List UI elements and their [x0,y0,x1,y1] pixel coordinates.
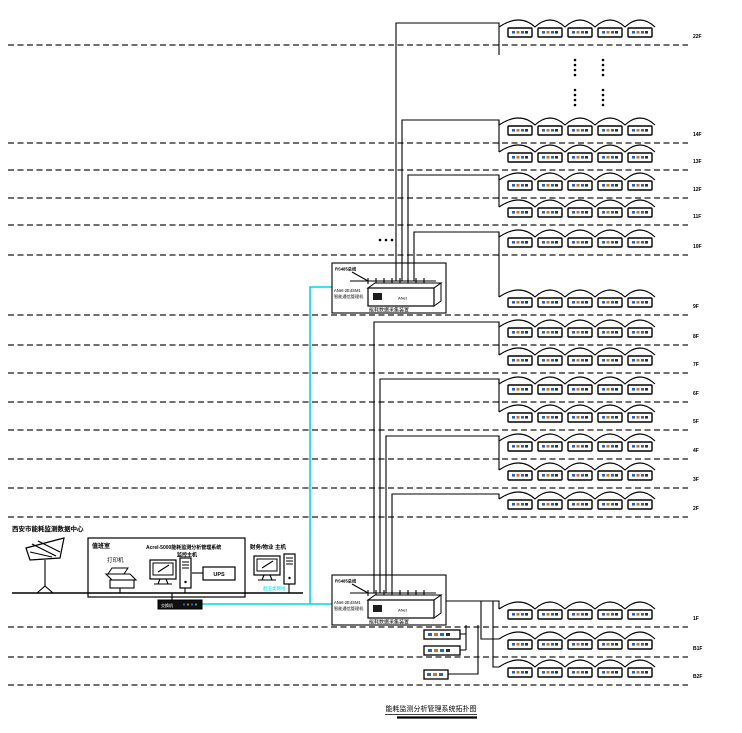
energy-meter-icon [508,181,532,190]
meter-daisy-chain [499,145,655,152]
energy-meter-icon [598,28,622,37]
floor-label: 1F [693,616,699,622]
floor-label: 13F [693,159,702,165]
energy-meter-icon [508,208,532,217]
floor-label: 8F [693,334,699,340]
monitoring-host-computer-icon [150,558,191,588]
omitted-riser-dots [379,239,394,242]
floor-row-10F: 10F [499,230,702,250]
floor-row-13F: 13F [499,145,702,165]
energy-meter-icon [598,328,622,337]
energy-meter-icon [538,208,562,217]
energy-meter-icon [508,385,532,394]
floor-feed-wire [380,379,499,593]
floor-feed-wire [481,601,499,639]
gateway-caption: 能耗数据采集装置 [369,307,409,314]
finance-host-computer-icon [254,554,295,584]
cable-label: 超五类网线 [263,585,286,592]
bus-leader-line [352,584,368,593]
floor-meter-rows: 22F14F13F12F11F10F9F8F7F6F5F4F3F2F1FB1FB… [499,20,702,680]
floor-row-8F: 8F [499,320,699,340]
gateway-model-line2: 智能通信管理机 [334,293,364,300]
satellite-dish-icon [26,538,64,593]
gateway-model-line1: ANet-2E4SM1 [334,600,361,605]
gateway-upper: RS485总线 ANet-2E4SM1 智能通信管理机 ANet 能耗数据采集装… [332,263,446,314]
energy-meter-icon [538,442,562,451]
energy-meter-icon [538,640,562,649]
host-label-line1: Acrel-5000能耗监测分析管理系统 [146,544,221,551]
energy-meter-icon [538,298,562,307]
floor-label: 7F [693,362,699,368]
energy-meter-icon [628,181,652,190]
energy-meter-icon [508,28,532,37]
floor-row-6F: 6F [499,377,699,397]
meter-daisy-chain [499,173,655,180]
device-brand-text: ANet [398,296,408,301]
energy-meter-icon [628,208,652,217]
meter-daisy-chain [499,377,655,384]
energy-meter-icon [628,153,652,162]
finance-host-label: 财务/物业 主机 [249,543,287,551]
ethernet-switch: 交换机 [158,600,202,609]
energy-meter-icon [424,646,460,655]
energy-meter-icon [628,328,652,337]
floor-label: 5F [693,419,699,425]
energy-meter-icon [508,413,532,422]
energy-meter-icon [598,385,622,394]
energy-meter-icon [538,385,562,394]
energy-meter-icon [628,238,652,247]
meter-daisy-chain [499,200,655,207]
energy-meter-icon [508,471,532,480]
energy-meter-icon [598,181,622,190]
floor-feed-wire [414,232,499,281]
floor-row-14F: 14F [499,118,702,138]
energy-meter-icon [508,328,532,337]
floor-feed-wire [396,23,499,281]
device-display [373,293,382,300]
meter-daisy-chain [499,348,655,355]
floor-feed-wire [402,120,499,281]
energy-meter-icon [628,28,652,37]
energy-meter-icon [538,153,562,162]
floor-feed-wire [374,322,499,593]
floor-row-3F: 3F [499,463,699,483]
gateway-model-line1: ANet-2E4SM1 [334,288,361,293]
energy-meter-icon [568,28,592,37]
meter-daisy-chain [499,320,655,327]
floor-feed-wire [446,601,499,609]
floor-label: 2F [693,506,699,512]
meter-daisy-chain [499,463,655,470]
energy-meter-icon [424,630,460,639]
energy-meter-icon [598,126,622,135]
energy-meter-icon [538,668,562,677]
energy-meter-icon [568,500,592,509]
gateway-caption: 能耗数据采集装置 [369,619,409,626]
meter-daisy-chain [499,405,655,412]
energy-meter-icon [538,413,562,422]
energy-meter-icon [598,668,622,677]
gateway-lower: RS485总线 ANet-2E4SM1 智能通信管理机 ANet 能耗数据采集装… [332,575,446,626]
energy-meter-icon [538,356,562,365]
meter-daisy-chain [499,20,655,27]
device-display [373,605,382,612]
energy-meter-icon [568,298,592,307]
bus-leader-line [352,272,368,281]
ethernet-cable-riser [310,287,332,604]
energy-meter-icon [628,385,652,394]
energy-meter-icon [508,298,532,307]
floor-row-7F: 7F [499,348,699,368]
energy-meter-icon [598,208,622,217]
floor-label: 12F [693,187,702,193]
energy-meter-icon [508,442,532,451]
energy-meter-icon [508,610,532,619]
data-center-label: 西安市能耗监测数据中心 [12,524,84,533]
energy-meter-icon [508,126,532,135]
ups-label: UPS [213,572,225,578]
floor-label: 9F [693,304,699,310]
printer-label: 打印机 [107,556,124,564]
device-brand-text: ANet [398,608,408,613]
energy-meter-icon [568,356,592,365]
rs485-bus-label: RS485总线 [335,266,357,273]
energy-meter-icon [628,413,652,422]
energy-meter-icon [628,471,652,480]
energy-meter-icon [568,328,592,337]
omitted-floors-dots [574,59,605,107]
system-topology-svg: 22F14F13F12F11F10F9F8F7F6F5F4F3F2F1FB1FB… [0,0,742,733]
energy-meter-icon [538,610,562,619]
energy-meter-icon [568,153,592,162]
energy-meter-icon [538,471,562,480]
floor-row-4F: 4F [499,434,699,454]
floor-row-11F: 11F [499,200,701,220]
floor-row-5F: 5F [499,405,699,425]
floor-label: 4F [693,448,699,454]
floor-row-1F: 1F [499,602,699,622]
energy-meter-icon [628,640,652,649]
rs485-bus-label: RS485总线 [335,578,357,585]
floor-row-9F: 9F [499,290,699,310]
floor-row-2F: 2F [499,492,699,512]
energy-meter-icon [568,610,592,619]
energy-meter-icon [628,442,652,451]
meter-daisy-chain [499,118,655,125]
control-centre: 西安市能耗监测数据中心 值班室 打印机 Acrel-5000能耗监测分析管理系统… [12,524,303,609]
energy-meter-icon [538,181,562,190]
ups-unit: UPS [203,567,235,580]
energy-meter-icon [508,238,532,247]
basement-meters [424,625,478,679]
energy-meter-icon [508,640,532,649]
energy-meter-icon [598,238,622,247]
page-title: 能耗监测分析管理系统拓扑图 [386,704,477,713]
energy-meter-icon [598,610,622,619]
energy-meter-icon [628,500,652,509]
energy-meter-icon [628,668,652,677]
floor-label: B1F [693,646,702,652]
floor-feed-wire [408,175,499,281]
floor-row-B1F: B1F [499,632,702,652]
floor-label: 10F [693,244,702,250]
energy-meter-icon [568,640,592,649]
gateway-device-icon: ANet [368,595,441,618]
meter-daisy-chain [499,492,655,499]
switch-label: 交换机 [161,602,173,608]
meter-daisy-chain [499,434,655,441]
floor-label: 22F [693,34,702,40]
energy-meter-icon [628,610,652,619]
floor-row-B2F: B2F [499,660,702,680]
energy-meter-icon [568,668,592,677]
gateway-model-line2: 智能通信管理机 [334,605,364,612]
energy-meter-icon [508,356,532,365]
energy-meter-icon [598,356,622,365]
energy-meter-icon [538,500,562,509]
floor-label: 3F [693,477,699,483]
printer-icon [106,568,136,588]
floor-label: 6F [693,391,699,397]
drawing-title: 能耗监测分析管理系统拓扑图 [385,704,477,718]
energy-meter-icon [538,28,562,37]
floor-row-22F: 22F [499,20,702,40]
floor-row-12F: 12F [499,173,702,193]
energy-meter-icon [568,126,592,135]
meter-daisy-chain [499,602,655,609]
energy-meter-icon [598,413,622,422]
energy-meter-icon [568,385,592,394]
energy-meter-icon [598,500,622,509]
gateway-device-icon: ANet [368,283,441,306]
topology-diagram-canvas: { "title": "能耗监测分析管理系统拓扑图", "data_center… [0,0,742,733]
floor-label: B2F [693,674,702,680]
energy-meter-icon [598,471,622,480]
energy-meter-icon [628,298,652,307]
energy-meter-icon [424,670,448,679]
energy-meter-icon [568,208,592,217]
energy-meter-icon [598,153,622,162]
energy-meter-icon [568,442,592,451]
energy-meter-icon [568,471,592,480]
meter-daisy-chain [499,290,655,297]
energy-meter-icon [568,413,592,422]
duty-room-label: 值班室 [92,542,110,550]
floor-label: 14F [693,132,702,138]
energy-meter-icon [568,238,592,247]
energy-meter-icon [508,500,532,509]
energy-meter-icon [508,668,532,677]
energy-meter-icon [538,328,562,337]
meter-daisy-chain [499,632,655,639]
energy-meter-icon [628,356,652,365]
energy-meter-icon [598,442,622,451]
meter-daisy-chain [499,660,655,667]
energy-meter-icon [538,126,562,135]
meter-daisy-chain [499,230,655,237]
energy-meter-icon [508,153,532,162]
energy-meter-icon [628,126,652,135]
energy-meter-icon [598,298,622,307]
floor-label: 11F [693,214,701,220]
energy-meter-icon [568,181,592,190]
energy-meter-icon [538,238,562,247]
energy-meter-icon [598,640,622,649]
